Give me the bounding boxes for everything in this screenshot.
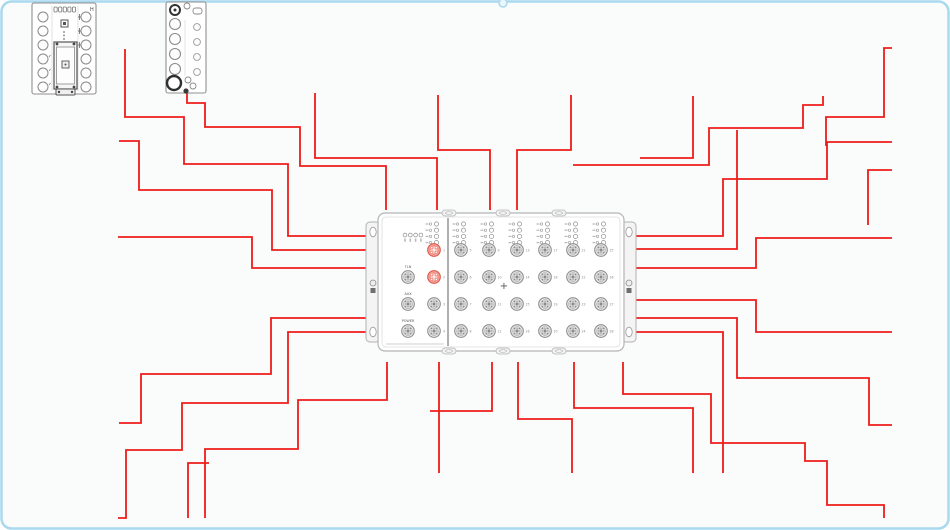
module1-port-left[interactable]: [38, 82, 48, 92]
module2-port-left[interactable]: [170, 49, 181, 60]
module2-wire-origin: [183, 88, 188, 93]
port-face: [595, 271, 608, 284]
port-face: [483, 244, 496, 257]
module1-port-left[interactable]: [38, 12, 48, 22]
module2-port-left[interactable]: [170, 19, 181, 30]
svg-text:4: 4: [443, 330, 445, 334]
svg-text:9: 9: [498, 249, 500, 253]
port-face: [511, 325, 524, 338]
module1-port-right[interactable]: [81, 26, 91, 36]
module1-corner-mark: H: [90, 7, 94, 13]
svg-text:TLN: TLN: [404, 265, 412, 269]
module2-port-left[interactable]: [170, 34, 181, 45]
svg-text:17: 17: [554, 249, 558, 253]
junction-box[interactable]: TLNAUXPOWER12345678910111213141516171819…: [366, 210, 636, 354]
module2-port-right[interactable]: [194, 69, 201, 76]
svg-text:22: 22: [582, 276, 586, 280]
port-face: [511, 271, 524, 284]
module2-power-port[interactable]: [167, 76, 181, 90]
port-face: [595, 244, 608, 257]
svg-text:24: 24: [582, 330, 586, 334]
svg-text:18: 18: [554, 276, 558, 280]
module1-port-left[interactable]: [38, 68, 48, 78]
topology-svg: TLNAUXPOWER12345678910111213141516171819…: [0, 0, 950, 530]
svg-text:21: 21: [582, 249, 586, 253]
svg-text:8: 8: [470, 330, 472, 334]
svg-text:13: 13: [526, 249, 530, 253]
port-face: [539, 244, 552, 257]
module1-port-left[interactable]: [38, 54, 48, 64]
module2-port-right[interactable]: [194, 24, 201, 31]
module1-port-right[interactable]: [81, 68, 91, 78]
svg-text:25: 25: [610, 249, 614, 253]
module1-port-right[interactable]: [81, 12, 91, 22]
module1-terminal: [54, 7, 57, 12]
fieldbus-module-1[interactable]: H: [32, 3, 96, 95]
svg-text:5: 5: [470, 249, 472, 253]
port-face: [567, 271, 580, 284]
topology-canvas: TLNAUXPOWER12345678910111213141516171819…: [0, 0, 950, 530]
port-face: [455, 244, 468, 257]
svg-text:AUX: AUX: [404, 292, 412, 296]
module1-terminal: [59, 7, 62, 12]
module2-port-right[interactable]: [194, 54, 201, 61]
port-face: [402, 271, 415, 284]
port-face: [428, 244, 441, 257]
svg-text:12: 12: [498, 330, 502, 334]
module1-port-left[interactable]: [38, 40, 48, 50]
module1-terminal: [72, 7, 75, 12]
svg-text:2: 2: [443, 276, 445, 280]
port-face: [428, 298, 441, 311]
svg-text:3: 3: [443, 303, 445, 307]
port-face: [428, 325, 441, 338]
module1-terminal: [68, 7, 71, 12]
svg-text:26: 26: [610, 276, 614, 280]
port-face: [511, 298, 524, 311]
side-port-power[interactable]: POWER: [402, 319, 415, 337]
port-face: [539, 298, 552, 311]
svg-text:16: 16: [526, 330, 530, 334]
port-face: [567, 325, 580, 338]
svg-text:7: 7: [470, 303, 472, 307]
port-face: [567, 244, 580, 257]
module1-terminal: [63, 7, 66, 12]
port-face: [539, 325, 552, 338]
port-face: [455, 298, 468, 311]
svg-text:28: 28: [610, 330, 614, 334]
port-face: [595, 298, 608, 311]
svg-text:1: 1: [443, 249, 445, 253]
port-face: [402, 298, 415, 311]
svg-text:10: 10: [498, 276, 502, 280]
port-face: [483, 298, 496, 311]
svg-text:23: 23: [582, 303, 586, 307]
canvas-top-nub: [499, 0, 507, 7]
svg-text:15: 15: [526, 303, 530, 307]
svg-text:19: 19: [554, 303, 558, 307]
module1-port-right[interactable]: [81, 54, 91, 64]
port-face: [483, 325, 496, 338]
port-face: [455, 325, 468, 338]
port-face: [539, 271, 552, 284]
svg-text:27: 27: [610, 303, 614, 307]
svg-text:6: 6: [470, 276, 472, 280]
svg-text:11: 11: [498, 303, 502, 307]
center-marker: +: [500, 281, 508, 292]
port-face: [511, 244, 524, 257]
port-face: [567, 298, 580, 311]
module1-port-right[interactable]: [81, 40, 91, 50]
svg-text:POWER: POWER: [402, 319, 415, 323]
module1-front-connector: [54, 42, 77, 95]
port-face: [595, 325, 608, 338]
svg-text:20: 20: [554, 330, 558, 334]
module1-port-right[interactable]: [81, 82, 91, 92]
port-face: [483, 271, 496, 284]
svg-text:14: 14: [526, 276, 530, 280]
module2-port-right[interactable]: [194, 39, 201, 46]
fieldbus-module-2[interactable]: [166, 2, 206, 94]
port-face: [428, 271, 441, 284]
module2-port-left[interactable]: [170, 64, 181, 75]
port-face: [402, 325, 415, 338]
module1-port-left[interactable]: [38, 26, 48, 36]
port-face: [455, 271, 468, 284]
